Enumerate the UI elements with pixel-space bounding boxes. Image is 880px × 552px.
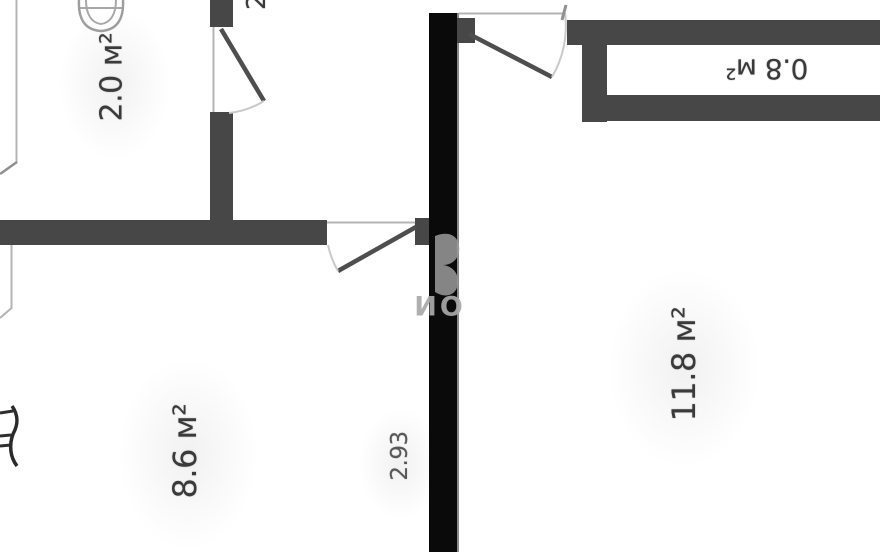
watermark-glyph-fragment: [435, 234, 459, 296]
watermark-layer: [0, 0, 880, 552]
floor-plan-canvas: 2.0 м² 8.6 м² 11.8 м² 0.8 м² 2.93 2 ИО: [0, 0, 880, 552]
watermark-text: ИО: [414, 292, 466, 323]
